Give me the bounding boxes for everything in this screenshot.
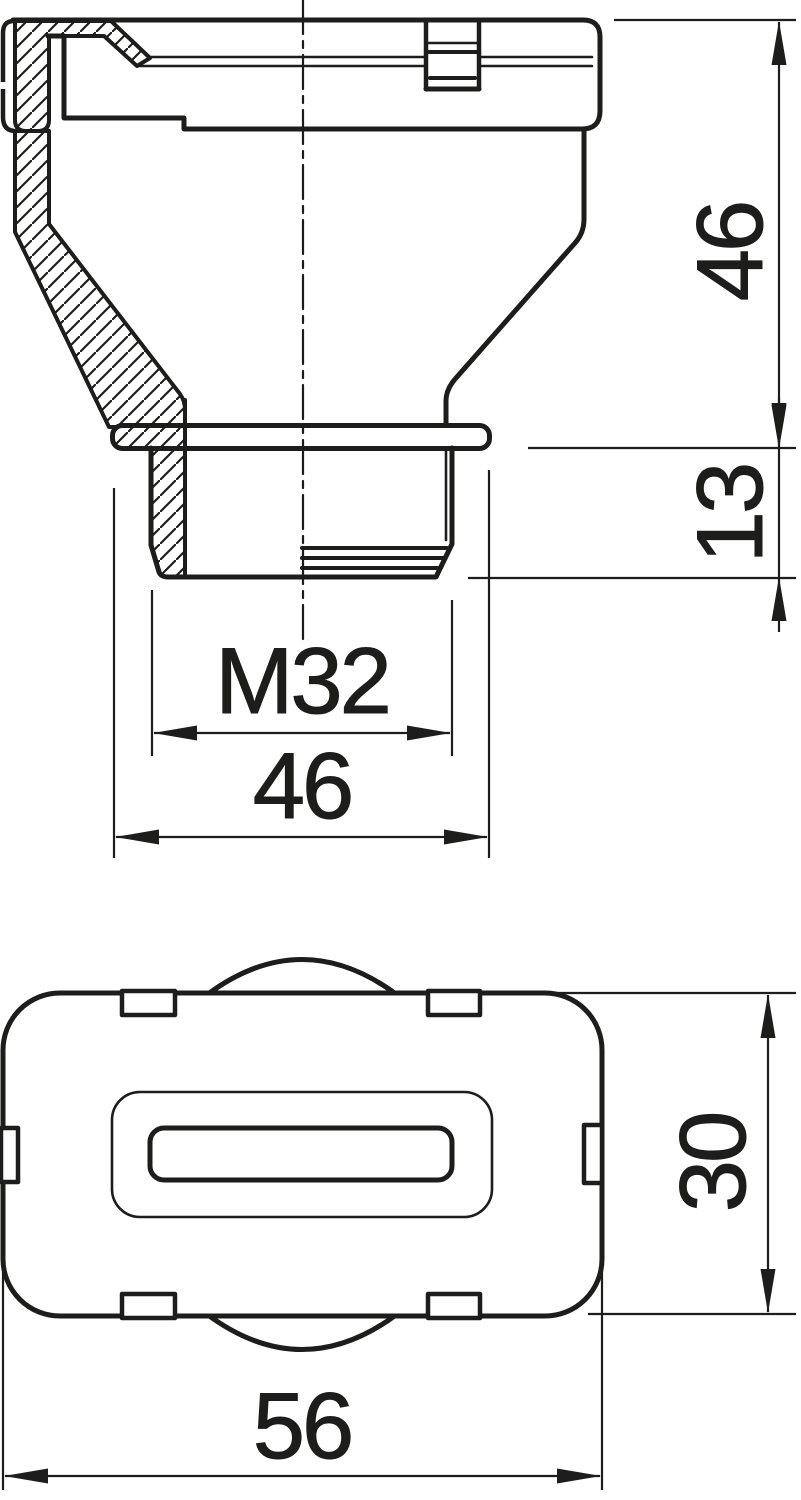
- thread-section-hatch: [151, 448, 185, 577]
- front-section-view: [0, 0, 600, 645]
- thread-runout-lines: [302, 548, 447, 568]
- latch-detail: [426, 21, 479, 89]
- tab-top-right: [428, 991, 480, 1015]
- dome-arc-bottom: [208, 1315, 396, 1350]
- lid-section-hatch: [15, 21, 150, 131]
- technical-drawing-page: 46 13 M32 46: [0, 0, 801, 1500]
- side-slot-left: [1, 1128, 18, 1182]
- lid-outer-shell: [3, 21, 14, 131]
- dimension-label-flange-width: 46: [253, 733, 352, 838]
- dome-arc-top: [208, 960, 396, 995]
- dimension-label-plan-width: 56: [253, 1373, 352, 1478]
- funnel-section-hatch: [15, 131, 185, 427]
- body-outline: [3, 993, 602, 1316]
- taper-right-outline: [446, 129, 584, 426]
- tab-top-left: [122, 991, 175, 1015]
- dimension-label-thread-length: 13: [677, 465, 782, 564]
- dimension-label-side-height: 46: [677, 203, 782, 302]
- flange-section-hatch: [113, 428, 185, 447]
- side-slot-right: [584, 1125, 602, 1183]
- shell-notch: [0, 82, 6, 89]
- dimension-thread-length: 13: [468, 398, 796, 632]
- dimension-side-height: 46: [614, 20, 796, 447]
- tab-bottom-right: [428, 1294, 480, 1318]
- tab-bottom-left: [122, 1294, 175, 1318]
- bottom-plan-view: [1, 960, 602, 1350]
- dimension-label-thread-size: M32: [215, 628, 389, 733]
- dimension-label-plan-height: 30: [660, 1114, 765, 1213]
- technical-drawing-canvas: 46 13 M32 46: [0, 0, 801, 1500]
